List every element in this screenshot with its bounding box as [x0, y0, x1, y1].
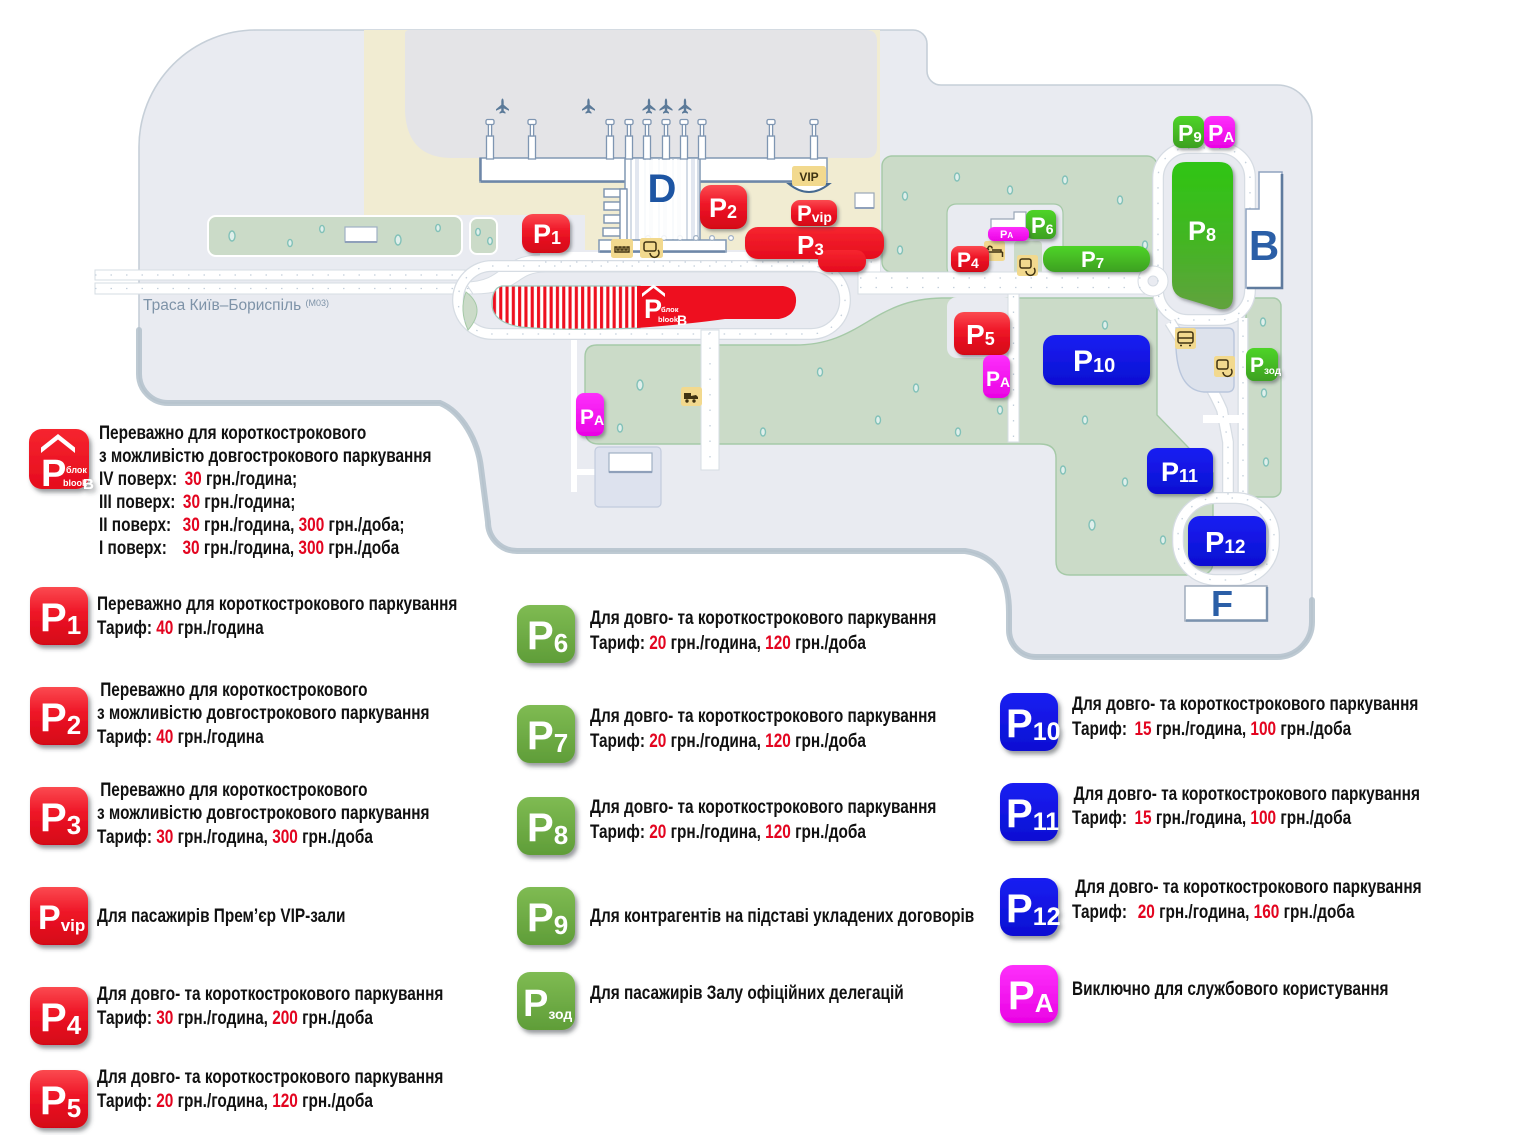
svg-text:B: B — [677, 312, 687, 328]
svg-text:Для контрагентів на підставі у: Для контрагентів на підставі укладених д… — [590, 904, 974, 926]
svg-text:Для довго- та короткостроковог: Для довго- та короткострокового паркуван… — [590, 704, 936, 726]
svg-text:Тариф: 15 грн./година, 100 грн: Тариф: 15 грн./година, 100 грн./доба — [1072, 806, 1351, 828]
svg-text:PA: PA — [1000, 229, 1013, 241]
svg-text:Тариф: 40 грн./година: Тариф: 40 грн./година — [97, 725, 264, 747]
svg-text:Переважно для короткостроковог: Переважно для короткострокового — [99, 421, 366, 443]
svg-text:Тариф: 20 грн./година, 120 грн: Тариф: 20 грн./година, 120 грн./доба — [590, 631, 866, 653]
svg-text:III поверх: 30 грн./година;: III поверх: 30 грн./година; — [99, 490, 295, 512]
svg-text:Для довго- та короткостроковог: Для довго- та короткострокового паркуван… — [97, 1065, 443, 1087]
svg-text:Для довго- та короткостроковог: Для довго- та короткострокового паркуван… — [1075, 875, 1421, 897]
svg-text:Тариф: 30 грн./година, 300 грн: Тариф: 30 грн./година, 300 грн./доба — [97, 825, 373, 847]
svg-text:Тариф: 15 грн./година, 100 грн: Тариф: 15 грн./година, 100 грн./доба — [1072, 717, 1351, 739]
svg-text:Для довго- та короткостроковог: Для довго- та короткострокового паркуван… — [1072, 692, 1418, 714]
svg-text:Тариф: 30 грн./година, 200 грн: Тариф: 30 грн./година, 200 грн./доба — [97, 1006, 373, 1028]
svg-text:Тариф: 20 грн./година, 120 грн: Тариф: 20 грн./година, 120 грн./доба — [97, 1089, 373, 1111]
svg-text:F: F — [1211, 583, 1233, 624]
svg-text:з можливістю довгострокового п: з можливістю довгострокового паркування — [99, 444, 432, 466]
svg-text:Для пасажирів Прем’єр VIP-зали: Для пасажирів Прем’єр VIP-зали — [97, 904, 345, 926]
svg-text:II поверх: 30 грн./година, 300: II поверх: 30 грн./година, 300 грн./доба… — [99, 513, 404, 535]
svg-text:Для пасажирів Залу офіційних д: Для пасажирів Залу офіційних делегацій — [590, 981, 904, 1003]
svg-text:blook: blook — [658, 315, 679, 324]
svg-text:D: D — [648, 167, 677, 211]
svg-text:Для довго- та короткостроковог: Для довго- та короткострокового паркуван… — [590, 606, 936, 628]
svg-text:P: P — [41, 453, 66, 495]
svg-text:VIP: VIP — [799, 170, 818, 184]
svg-text:Для довго- та короткостроковог: Для довго- та короткострокового паркуван… — [97, 982, 443, 1004]
svg-text:Тариф: 40 грн./година: Тариф: 40 грн./година — [97, 616, 264, 638]
svg-text:з можливістю довгострокового п: з можливістю довгострокового паркування — [97, 801, 430, 823]
svg-text:блок: блок — [66, 465, 87, 475]
svg-text:Виключно для службового корист: Виключно для службового користування — [1072, 977, 1389, 999]
svg-text:Траса Київ–Бориспіль (М03): Траса Київ–Бориспіль (М03) — [143, 297, 329, 314]
svg-text:Переважно для короткостроковог: Переважно для короткострокового — [100, 778, 367, 800]
svg-text:I поверх: 30 грн./година, 300: I поверх: 30 грн./година, 300 грн./доба — [99, 536, 399, 558]
svg-text:Тариф: 20 грн./година, 120 грн: Тариф: 20 грн./година, 120 грн./доба — [590, 729, 866, 751]
svg-text:Переважно для короткостроковог: Переважно для короткострокового — [100, 678, 367, 700]
svg-text:Для довго- та короткостроковог: Для довго- та короткострокового паркуван… — [1074, 782, 1420, 804]
svg-text:Переважно для короткостроковог: Переважно для короткострокового паркуван… — [97, 592, 457, 614]
svg-text:Тариф: 20 грн./година, 160 грн: Тариф: 20 грн./година, 160 грн./доба — [1072, 900, 1355, 922]
svg-text:Для довго- та короткостроковог: Для довго- та короткострокового паркуван… — [590, 795, 936, 817]
svg-text:Тариф: 20 грн./година, 120 грн: Тариф: 20 грн./година, 120 грн./доба — [590, 820, 866, 842]
svg-text:B: B — [1249, 222, 1279, 269]
svg-text:IV поверх: 30 грн./година;: IV поверх: 30 грн./година; — [99, 467, 297, 489]
svg-text:B: B — [83, 476, 94, 493]
svg-text:з можливістю довгострокового п: з можливістю довгострокового паркування — [97, 701, 430, 723]
